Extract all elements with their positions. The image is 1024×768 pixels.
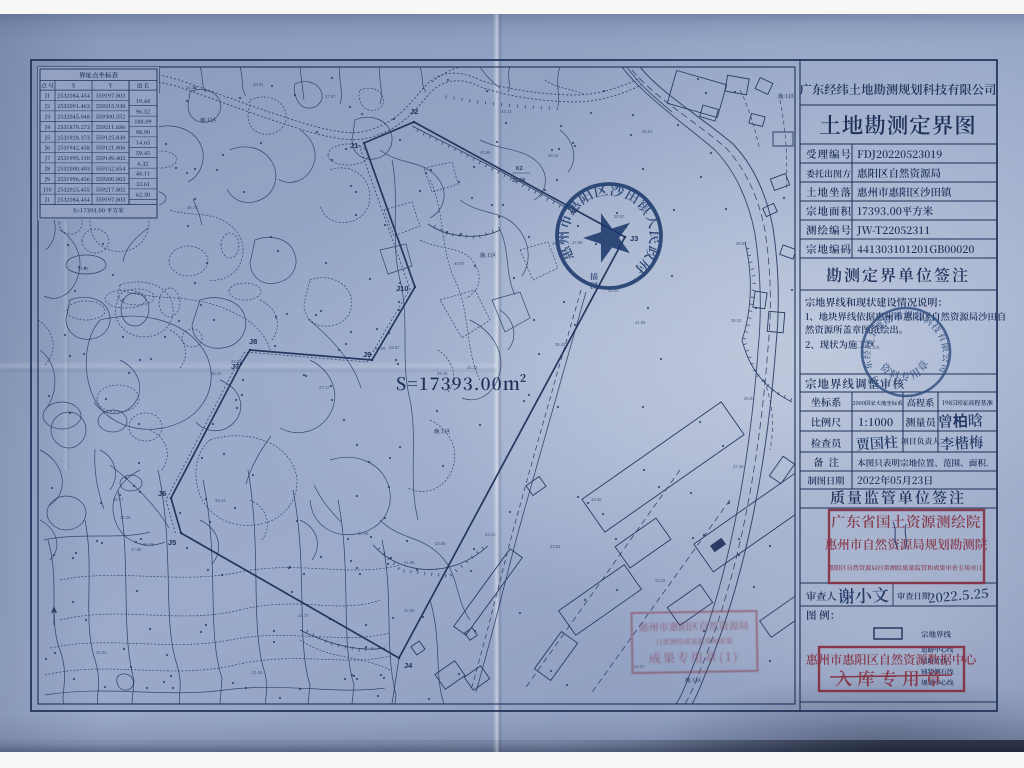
svg-text:边 长: 边 长 <box>137 82 150 90</box>
svg-text:宗地面积: 宗地面积 <box>806 204 852 219</box>
svg-text:23.89: 23.89 <box>435 541 446 546</box>
svg-text:48.11: 48.11 <box>136 170 150 178</box>
svg-text:惠阳区自然资源局: 惠阳区自然资源局 <box>857 166 941 181</box>
svg-text:备 注: 备 注 <box>813 454 839 469</box>
svg-text:S=17393.00m²: S=17393.00m² <box>396 371 527 396</box>
svg-text:描图: 描图 <box>589 272 600 290</box>
svg-text:26.95: 26.95 <box>358 531 369 536</box>
svg-text:JW-T22052311: JW-T22052311 <box>856 223 930 238</box>
svg-text:土地坐落: 土地坐落 <box>806 185 852 200</box>
svg-text:25.94: 25.94 <box>744 396 755 401</box>
svg-text:J5: J5 <box>44 133 50 141</box>
svg-text:高程系: 高程系 <box>907 395 935 409</box>
svg-text:J1: J1 <box>350 141 358 150</box>
svg-text:2532000.403: 2532000.403 <box>57 165 90 173</box>
svg-text:14.65: 14.65 <box>136 139 150 147</box>
svg-text:33.56: 33.56 <box>591 497 602 502</box>
svg-text:检查员: 检查员 <box>811 435 842 450</box>
svg-text:30.03: 30.03 <box>96 650 107 655</box>
svg-text:入库专用章: 入库专用章 <box>835 666 948 691</box>
svg-text:X: X <box>72 82 76 90</box>
svg-text:62.30: 62.30 <box>136 191 150 199</box>
svg-text:施工区: 施工区 <box>434 427 451 435</box>
svg-text:1985国家高程基准: 1985国家高程基准 <box>942 398 994 407</box>
svg-text:35.22: 35.22 <box>211 371 222 376</box>
svg-text:19.44: 19.44 <box>136 97 150 105</box>
svg-text:审查人: 审查人 <box>806 588 837 603</box>
svg-text:2532091.463: 2532091.463 <box>57 102 90 110</box>
svg-text:2531928.373: 2531928.373 <box>57 133 90 141</box>
svg-text:559197.803: 559197.803 <box>96 92 126 100</box>
svg-text:22.27: 22.27 <box>634 664 645 669</box>
svg-text:6.32: 6.32 <box>137 159 148 167</box>
svg-text:559125.830: 559125.830 <box>96 133 126 141</box>
svg-text:质量监管单位签注: 质量监管单位签注 <box>830 487 966 508</box>
svg-text:K2: K2 <box>516 166 523 172</box>
svg-text:委托出图方: 委托出图方 <box>806 167 851 180</box>
svg-text:59.45: 59.45 <box>136 149 150 157</box>
svg-text:J6: J6 <box>44 144 50 152</box>
svg-text:40.87: 40.87 <box>454 261 465 266</box>
svg-text:李楷梅: 李楷梅 <box>939 431 984 454</box>
svg-text:30.26: 30.26 <box>120 515 131 520</box>
svg-text:1:1000: 1:1000 <box>858 414 893 430</box>
svg-text:贾国柱: 贾国柱 <box>855 432 898 455</box>
svg-text:2022.5.25: 2022.5.25 <box>927 583 989 607</box>
svg-text:谢小文: 谢小文 <box>837 581 889 608</box>
svg-text:36.75: 36.75 <box>187 205 198 210</box>
svg-text:广东省国土资源测绘院: 广东省国土资源测绘院 <box>831 511 981 532</box>
svg-text:23.52: 23.52 <box>550 544 561 549</box>
svg-text:96.52: 96.52 <box>136 107 150 115</box>
svg-text:勘测定界单位签注: 勘测定界单位签注 <box>826 263 970 286</box>
svg-text:38.51: 38.51 <box>642 129 653 134</box>
svg-text:受理编号: 受理编号 <box>806 147 852 162</box>
svg-text:23.87: 23.87 <box>389 345 400 350</box>
svg-text:界址点坐标表: 界址点坐标表 <box>79 70 119 79</box>
svg-text:35.41: 35.41 <box>555 342 566 347</box>
svg-text:日常测绘质量监管和成果: 日常测绘质量监管和成果 <box>655 636 732 647</box>
svg-text:J7: J7 <box>44 154 50 162</box>
svg-text:21.56: 21.56 <box>635 320 646 325</box>
svg-text:项目负责人: 项目负责人 <box>901 436 940 447</box>
svg-text:惠州市惠阳区自然资源局: 惠州市惠阳区自然资源局 <box>639 617 749 634</box>
svg-text:S=17393.00 平方米: S=17393.00 平方米 <box>73 205 124 214</box>
svg-text:J10: J10 <box>396 284 409 293</box>
svg-text:成果专用章(1): 成果专用章(1) <box>649 648 740 667</box>
svg-text:23.13: 23.13 <box>501 109 512 114</box>
svg-text:2532084.454: 2532084.454 <box>57 92 90 100</box>
svg-text:37.86: 37.86 <box>131 547 142 552</box>
svg-text:J7: J7 <box>231 362 239 371</box>
svg-text:J4: J4 <box>44 123 50 131</box>
svg-text:施工区: 施工区 <box>200 116 217 124</box>
svg-text:32.73: 32.73 <box>143 542 154 547</box>
svg-text:2000国家大地坐标系: 2000国家大地坐标系 <box>852 399 902 407</box>
svg-text:惠州市惠阳区沙田镇: 惠州市惠阳区沙田镇 <box>857 185 952 200</box>
svg-text:2531995.110: 2531995.110 <box>57 154 90 162</box>
svg-text:J1: J1 <box>44 196 50 204</box>
svg-text:J9: J9 <box>44 175 50 183</box>
svg-text:441303101201GB00020: 441303101201GB00020 <box>857 242 974 257</box>
svg-text:土地勘测定界图: 土地勘测定界图 <box>819 109 977 140</box>
svg-text:2531879.273: 2531879.273 <box>57 123 90 131</box>
svg-text:33.61: 33.61 <box>136 180 150 188</box>
svg-text:34.22: 34.22 <box>78 266 89 271</box>
svg-text:559121.806: 559121.806 <box>96 144 126 152</box>
svg-text:测绘编号: 测绘编号 <box>806 223 852 238</box>
svg-text:559200.803: 559200.803 <box>96 175 126 183</box>
svg-text:比例尺: 比例尺 <box>811 414 842 429</box>
svg-text:J1: J1 <box>44 92 50 100</box>
svg-text:然资源所盖章图纸绘出。: 然资源所盖章图纸绘出。 <box>805 322 908 336</box>
svg-text:559197.803: 559197.803 <box>96 196 126 204</box>
svg-text:Y: Y <box>109 82 113 90</box>
svg-text:J2: J2 <box>44 102 50 110</box>
svg-text:22.22: 22.22 <box>655 578 666 583</box>
svg-text:测量员: 测量员 <box>905 414 936 429</box>
svg-text:39.91: 39.91 <box>253 82 264 87</box>
svg-text:宗地编码: 宗地编码 <box>806 242 852 257</box>
svg-text:98.90: 98.90 <box>136 128 150 136</box>
svg-text:2532025.455: 2532025.455 <box>57 185 90 193</box>
svg-text:31.22: 31.22 <box>186 85 197 90</box>
svg-text:施工区: 施工区 <box>685 676 702 684</box>
svg-text:22.41: 22.41 <box>485 532 496 537</box>
svg-text:施工区: 施工区 <box>778 92 795 100</box>
svg-text:坐标系: 坐标系 <box>811 394 842 409</box>
svg-text:J2: J2 <box>410 107 418 116</box>
svg-text:21.95: 21.95 <box>404 560 415 565</box>
svg-text:J8: J8 <box>44 165 50 173</box>
svg-text:36.97: 36.97 <box>736 241 747 246</box>
svg-text:J3: J3 <box>44 113 50 121</box>
svg-text:J6: J6 <box>158 489 166 498</box>
svg-text:广东经纬土地勘测规划科技有限公司: 广东经纬土地勘测规划科技有限公司 <box>800 80 997 98</box>
svg-text:J3: J3 <box>630 234 638 243</box>
svg-text:31.62: 31.62 <box>252 670 263 675</box>
svg-text:惠阳区自然资源局日常测绘质量监管和成果审查专用章(1): 惠阳区自然资源局日常测绘质量监管和成果审查专用章(1) <box>828 563 984 572</box>
svg-text:32.06: 32.06 <box>404 608 415 613</box>
svg-text:188.09: 188.09 <box>134 118 151 126</box>
svg-text:FDJ20220523019: FDJ20220523019 <box>857 147 942 162</box>
svg-text:曾柏晗: 曾柏晗 <box>938 410 984 433</box>
svg-text:30.97: 30.97 <box>614 214 625 219</box>
svg-text:J10: J10 <box>42 185 51 193</box>
svg-text:J9: J9 <box>363 350 371 359</box>
svg-text:制图日期: 制图日期 <box>808 473 845 487</box>
svg-text:27.17: 27.17 <box>319 385 330 390</box>
svg-text:审查日期: 审查日期 <box>897 591 930 602</box>
svg-text:38.24: 38.24 <box>548 153 559 158</box>
svg-text:2532045.048: 2532045.048 <box>57 113 90 121</box>
svg-text:26.43: 26.43 <box>215 498 226 503</box>
svg-text:2531996.456: 2531996.456 <box>57 175 90 183</box>
svg-text:33.17: 33.17 <box>113 497 124 502</box>
svg-text:559149.402: 559149.402 <box>96 154 126 162</box>
svg-text:40.66: 40.66 <box>480 150 491 155</box>
svg-text:34.72: 34.72 <box>298 613 309 618</box>
svg-text:J8: J8 <box>249 337 257 346</box>
svg-text:37.89: 37.89 <box>572 240 583 245</box>
svg-text:559217.802: 559217.802 <box>96 185 126 193</box>
svg-text:37.87: 37.87 <box>325 94 336 99</box>
svg-text:宗地界线和现状建设情况说明：: 宗地界线和现状建设情况说明： <box>805 294 948 309</box>
svg-text:559152.854: 559152.854 <box>96 165 126 173</box>
svg-text:宗地界线: 宗地界线 <box>921 629 951 640</box>
svg-text:点 号: 点 号 <box>41 82 54 90</box>
svg-text:17393.00平方米: 17393.00平方米 <box>857 204 934 219</box>
svg-text:37.40: 37.40 <box>733 464 744 469</box>
svg-text:2531942.458: 2531942.458 <box>57 144 90 152</box>
svg-text:J4: J4 <box>404 661 413 670</box>
svg-text:2022年05月23日: 2022年05月23日 <box>857 472 933 487</box>
svg-text:本图只表明宗地位置、范围、面积.: 本图只表明宗地位置、范围、面积. <box>857 457 989 469</box>
svg-text:2532084.454: 2532084.454 <box>57 196 90 204</box>
svg-text:图 例：: 图 例： <box>806 608 840 623</box>
svg-text:559211.686: 559211.686 <box>96 123 126 131</box>
svg-text:J5: J5 <box>168 538 176 547</box>
svg-text:559300.552: 559300.552 <box>96 113 126 121</box>
svg-text:施工区: 施工区 <box>480 251 497 259</box>
svg-text:35.02: 35.02 <box>731 318 742 323</box>
svg-text:31.15: 31.15 <box>467 365 478 370</box>
svg-text:35.88: 35.88 <box>512 178 525 184</box>
svg-text:559215.930: 559215.930 <box>96 102 126 110</box>
